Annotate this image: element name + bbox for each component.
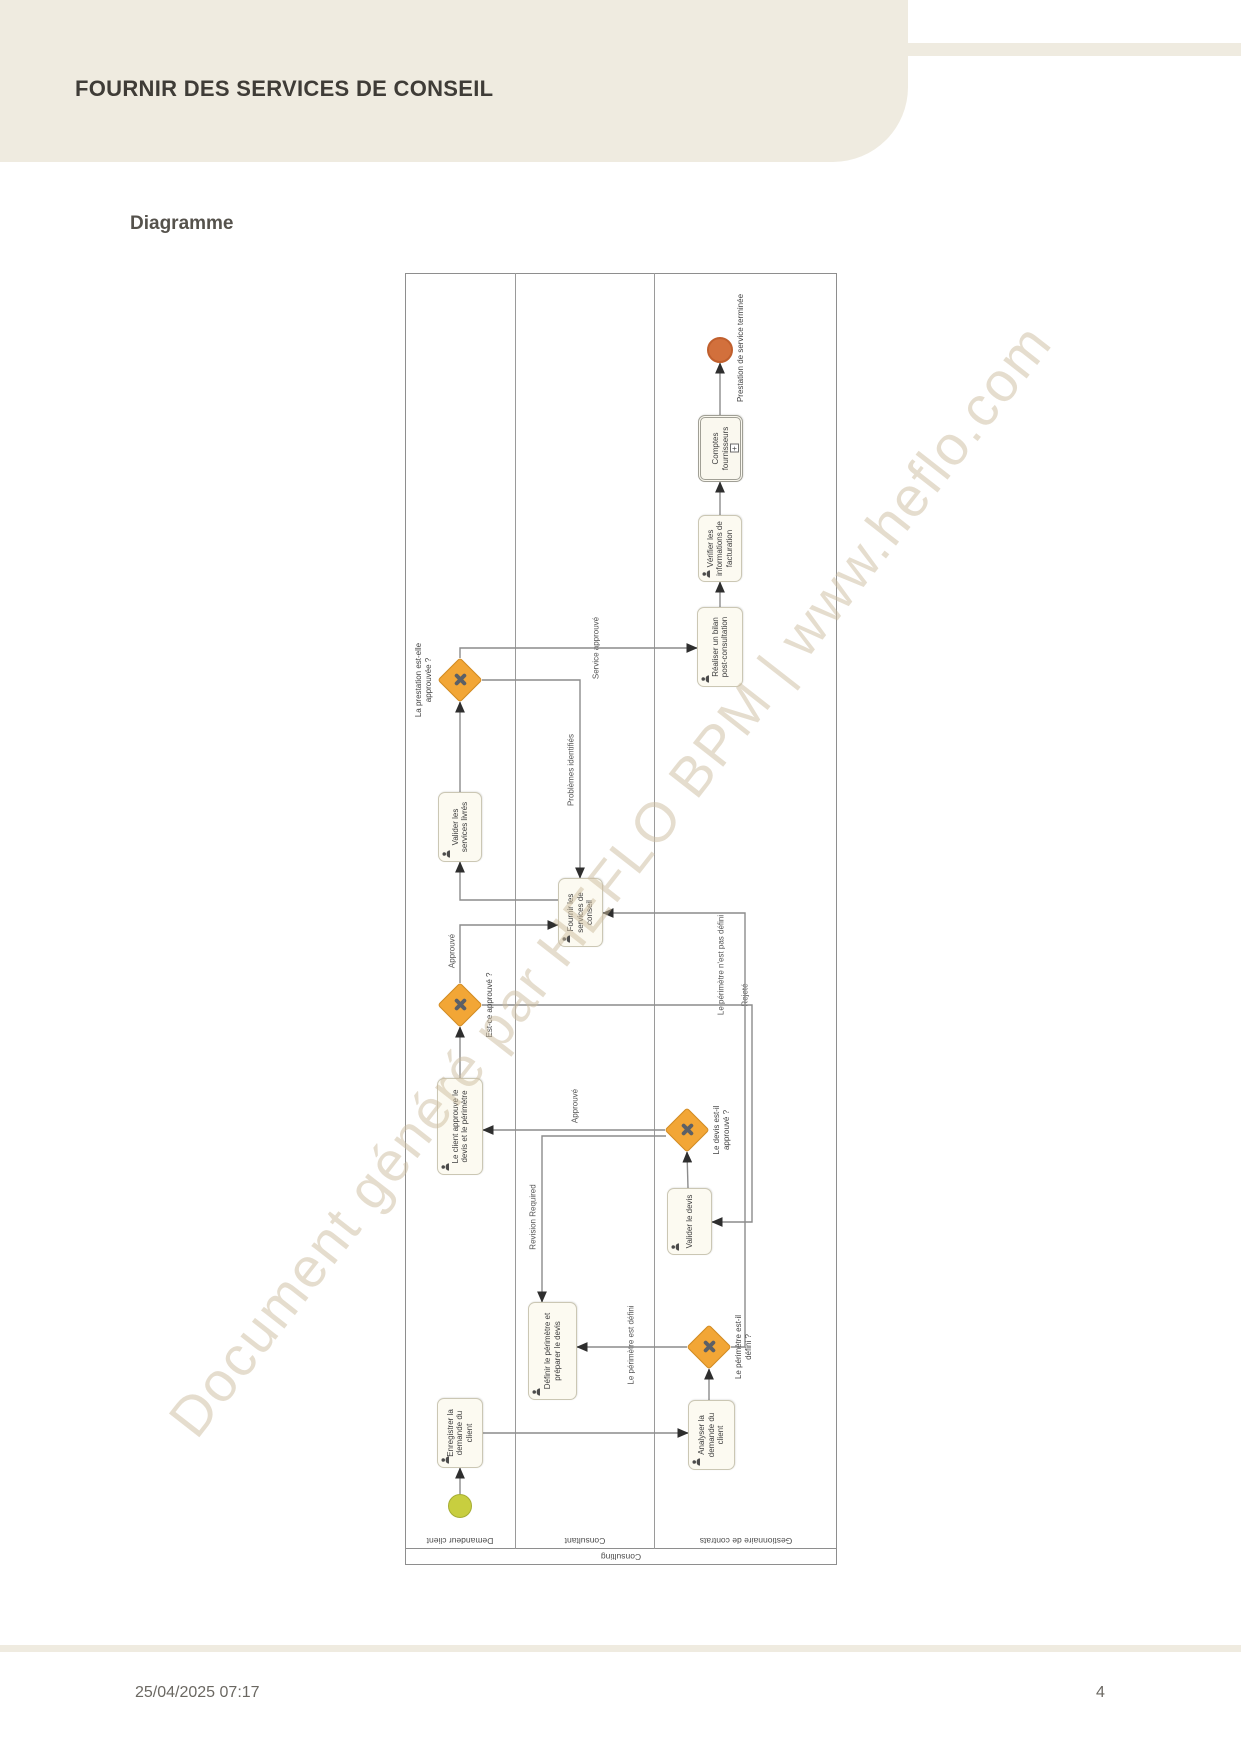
task-label: Valider les services livrés [451, 795, 470, 859]
gateway-x-icon [438, 658, 482, 702]
subprocess-plus-icon: + [730, 444, 739, 453]
bpmn-canvas: Consulting Demandeur clientConsultantGes… [405, 273, 837, 1565]
sequence-flow-fournir-to-valider-livres [460, 862, 558, 900]
bpmn-end-event [707, 337, 733, 363]
user-person-icon [671, 1243, 679, 1251]
bpmn-task: Le client approuve le devis et le périmè… [437, 1078, 483, 1175]
header-accent-strip [908, 43, 1241, 56]
section-heading: Diagramme [130, 213, 234, 235]
task-label: Comptes fournisseurs [711, 420, 730, 477]
task-label: Fournir les services de conseil [566, 881, 594, 944]
bpmn-task: Valider les services livrés [438, 792, 482, 862]
gateway-x-icon [665, 1108, 709, 1152]
bpmn-gateway [687, 1325, 731, 1369]
user-person-icon [692, 1458, 700, 1466]
user-person-icon [532, 1388, 540, 1396]
task-label: Réaliser un bilan post-consultation [711, 610, 730, 684]
sequence-flow-service-approuve [460, 648, 697, 658]
task-label: Le client approuve le devis et le périmè… [451, 1081, 470, 1172]
user-person-icon [701, 675, 709, 683]
footer-datetime: 25/04/2025 07:17 [135, 1684, 260, 1702]
page-title: FOURNIR DES SERVICES DE CONSEIL [75, 76, 493, 102]
task-label: Analyser la demande du client [697, 1403, 725, 1467]
bpmn-task: Valider le devis [667, 1188, 712, 1255]
gateway-label: Le périmètre est-il défini ? [734, 1311, 753, 1383]
sequence-flow-valider-devis-to-gw [687, 1152, 688, 1188]
task-label: Définir le périmètre et préparer le devi… [543, 1305, 562, 1397]
task-label: Valider le devis [685, 1195, 694, 1249]
user-person-icon [442, 850, 450, 858]
gateway-label: La prestation est-elle approuvée ? [414, 634, 433, 726]
task-label: Enregistrer la demande du client [446, 1401, 474, 1465]
bpmn-start-event [448, 1494, 472, 1518]
gateway-label: Le devis est-il approuvé ? [712, 1099, 731, 1161]
gateway-x-icon [438, 983, 482, 1027]
bpmn-task: Analyser la demande du client [688, 1400, 735, 1470]
sequence-flows [405, 273, 837, 1565]
sequence-flow-problemes-identifies [482, 680, 580, 878]
task-label: Vérifier les informations de facturation [706, 518, 734, 579]
bpmn-task: Enregistrer la demande du client [437, 1398, 483, 1468]
bpmn-gateway [438, 658, 482, 702]
footer-divider-strip [0, 1645, 1241, 1652]
sequence-flow-revision-required [542, 1136, 666, 1302]
user-person-icon [702, 570, 710, 578]
bpmn-task: Fournir les services de conseil [558, 878, 603, 947]
bpmn-gateway [438, 983, 482, 1027]
user-person-icon [441, 1163, 449, 1171]
footer-page-number: 4 [1096, 1684, 1105, 1702]
bpmn-subprocess: Comptes fournisseurs+ [698, 415, 743, 482]
diagram-area: Consulting Demandeur clientConsultantGes… [405, 273, 837, 1565]
bpmn-task: Réaliser un bilan post-consultation [697, 607, 743, 687]
event-label: Prestation de service terminée [736, 294, 745, 402]
gateway-x-icon [687, 1325, 731, 1369]
bpmn-gateway [665, 1108, 709, 1152]
bpmn-task: Vérifier les informations de facturation [698, 515, 742, 582]
user-person-icon [562, 935, 570, 943]
bpmn-task: Définir le périmètre et préparer le devi… [528, 1302, 577, 1400]
gateway-label: Est-ce approuvé ? [485, 963, 495, 1047]
user-person-icon [441, 1456, 449, 1464]
sequence-flow-estce-approuve [460, 925, 558, 983]
